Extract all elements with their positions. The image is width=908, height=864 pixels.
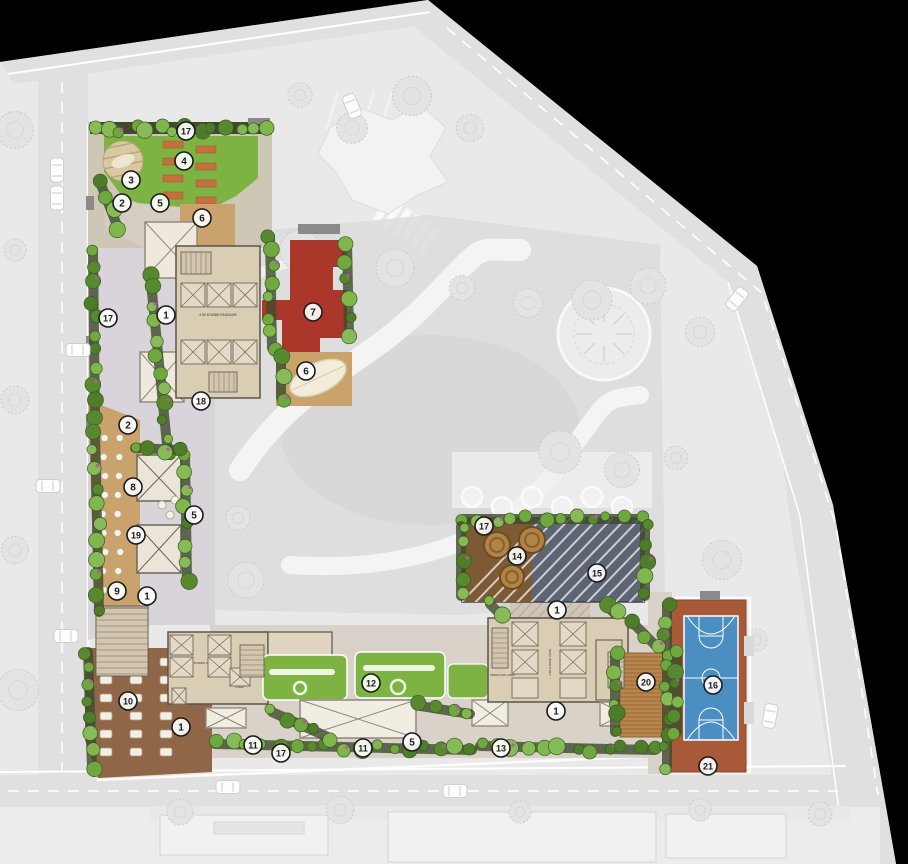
parked-car — [443, 785, 467, 798]
marker-13: 13 — [492, 739, 510, 757]
lift-shaft-box — [512, 650, 538, 674]
marker-11: 11 — [244, 736, 262, 754]
marker-17: 17 — [99, 309, 117, 327]
svg-text:1: 1 — [178, 722, 184, 733]
svg-text:6: 6 — [303, 366, 309, 377]
svg-text:5: 5 — [191, 510, 197, 521]
planting-strip — [274, 348, 292, 407]
svg-text:9: 9 — [114, 586, 120, 597]
marker-1: 1 — [157, 306, 175, 324]
svg-text:17: 17 — [276, 748, 286, 758]
marker-8: 8 — [124, 478, 142, 496]
lift-box — [512, 678, 538, 698]
marker-12: 12 — [362, 674, 380, 692]
lift-shaft-box — [560, 622, 586, 646]
marker-1: 1 — [172, 718, 190, 736]
lift-shaft-box — [181, 340, 205, 364]
svg-text:1: 1 — [163, 310, 169, 321]
svg-text:13: 13 — [496, 743, 506, 753]
gate-tag-court — [700, 591, 720, 600]
marker-6: 6 — [297, 362, 315, 380]
svg-text:1: 1 — [553, 706, 559, 717]
svg-text:17: 17 — [103, 313, 113, 323]
context-strip — [0, 806, 880, 864]
marker-3: 3 — [122, 171, 140, 189]
marker-2: 2 — [119, 416, 137, 434]
lift-shaft-box — [170, 657, 193, 677]
lift-shaft-box — [512, 622, 538, 646]
marker-1: 1 — [548, 601, 566, 619]
svg-text:12: 12 — [366, 678, 376, 688]
svg-text:2: 2 — [119, 198, 125, 209]
svg-text:18: 18 — [196, 396, 206, 406]
svg-text:14: 14 — [512, 551, 522, 561]
svg-text:15: 15 — [592, 568, 602, 578]
lift-shaft-box — [207, 340, 231, 364]
marker-19: 19 — [127, 526, 145, 544]
site-plan: 2.50 M WIDE PASSAGE LIFT LIFT 1.50 M WID… — [0, 0, 908, 864]
lift-shaft-box — [233, 283, 257, 307]
parked-car — [216, 781, 240, 794]
parked-car — [51, 186, 64, 210]
svg-text:11: 11 — [358, 743, 368, 753]
staircase — [96, 608, 148, 676]
svg-text:7: 7 — [310, 307, 316, 318]
svg-text:6: 6 — [199, 213, 205, 224]
marker-1: 1 — [547, 702, 565, 720]
lift-box — [560, 678, 586, 698]
marker-1: 1 — [138, 587, 156, 605]
marker-17: 17 — [272, 744, 290, 762]
svg-text:5: 5 — [157, 198, 163, 209]
staircase — [492, 628, 508, 668]
lift-shaft-box — [233, 340, 257, 364]
svg-text:19: 19 — [131, 530, 141, 540]
court-notch-2 — [744, 702, 754, 724]
lift-shaft-box — [208, 635, 231, 655]
marker-5: 5 — [403, 733, 421, 751]
svg-text:10: 10 — [123, 696, 133, 706]
marker-15: 15 — [588, 564, 606, 582]
marker-5: 5 — [151, 194, 169, 212]
staircase — [181, 252, 211, 274]
marker-18: 18 — [192, 392, 210, 410]
svg-text:17: 17 — [479, 521, 489, 531]
svg-text:20: 20 — [641, 677, 651, 687]
marker-10: 10 — [119, 692, 137, 710]
svg-text:1: 1 — [554, 605, 560, 616]
staircase — [240, 645, 264, 677]
staircase — [209, 372, 237, 392]
marker-2: 2 — [113, 194, 131, 212]
gate-tag-n — [298, 224, 340, 234]
lift-shaft-box — [560, 650, 586, 674]
lift-shaft-box — [207, 283, 231, 307]
svg-text:17: 17 — [181, 126, 191, 136]
marker-14: 14 — [508, 547, 526, 565]
svg-text:8: 8 — [130, 482, 136, 493]
parked-car — [66, 344, 90, 357]
passage-label-n: 2.50 M WIDE PASSAGE — [199, 313, 237, 317]
marker-17: 17 — [475, 517, 493, 535]
marker-16: 16 — [704, 676, 722, 694]
parked-car — [36, 480, 60, 493]
lawn-play-3 — [448, 664, 488, 698]
court-notch-1 — [744, 636, 754, 656]
passage-label-s: 1.85 M WIDE PASS. — [548, 648, 552, 676]
svg-text:16: 16 — [708, 680, 718, 690]
marker-7: 7 — [304, 303, 322, 321]
svg-text:21: 21 — [703, 761, 713, 771]
marker-5: 5 — [185, 506, 203, 524]
marker-21: 21 — [699, 757, 717, 775]
marker-4: 4 — [175, 152, 193, 170]
marker-6: 6 — [193, 209, 211, 227]
svg-text:4: 4 — [181, 156, 187, 167]
svg-text:1: 1 — [144, 591, 150, 602]
svg-text:5: 5 — [409, 737, 415, 748]
parked-car — [51, 158, 64, 182]
lift-shaft-box — [181, 283, 205, 307]
lift-shaft-box — [172, 688, 186, 704]
parked-car — [54, 630, 78, 643]
lift-shaft-box — [170, 635, 193, 655]
svg-text:3: 3 — [128, 175, 134, 186]
marker-20: 20 — [637, 673, 655, 691]
svg-text:11: 11 — [248, 740, 258, 750]
lift-shaft-box — [208, 657, 231, 677]
marker-11: 11 — [354, 739, 372, 757]
marker-9: 9 — [108, 582, 126, 600]
svg-text:2: 2 — [125, 420, 131, 431]
site-plan-stage: 2.50 M WIDE PASSAGE LIFT LIFT 1.50 M WID… — [0, 0, 908, 864]
marker-17: 17 — [177, 122, 195, 140]
